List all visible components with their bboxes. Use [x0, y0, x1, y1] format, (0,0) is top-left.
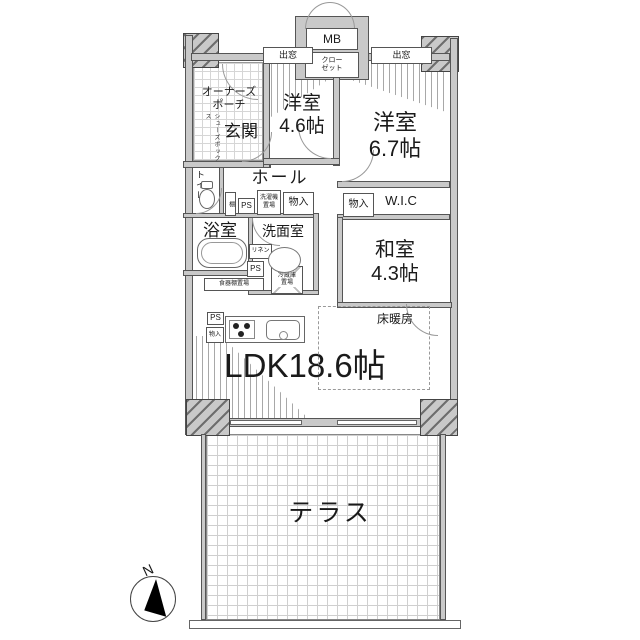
shelf: 棚 [225, 192, 236, 216]
door-arc [305, 2, 355, 29]
wall [337, 181, 450, 188]
shelf-label: 棚 [227, 201, 233, 208]
bedroom1-size: 4.6帖 [279, 116, 324, 139]
genkan-text: 玄関 [224, 122, 258, 142]
closet: クロー ゼット [305, 52, 359, 78]
washbasin [268, 247, 301, 273]
stove-burner [233, 323, 239, 329]
wall [185, 35, 193, 435]
washroom-text: 洗面室 [262, 223, 304, 240]
monoire-wic: 物入 [343, 193, 374, 217]
washitsu-size: 4.3帖 [371, 262, 419, 286]
floor-heating-text: 床暖房 [377, 312, 413, 326]
meter-box-label: MB [323, 33, 341, 46]
terrace-label: テラス [278, 498, 382, 528]
floor-plan: MB クロー ゼット 出窓 出窓 オーナーズ ポーチ シューズボックス 玄関 洋… [0, 0, 640, 640]
monoire-kitchen: 物入 [206, 327, 224, 343]
pipe-space-kitchen: PS [207, 312, 224, 325]
bedroom2-size: 6.7帖 [369, 136, 422, 162]
bedroom1-name: 洋室 [283, 93, 321, 116]
owners-porch-label: オーナーズ ポーチ [196, 82, 262, 116]
bedroom1-label: 洋室4.6帖 [268, 84, 336, 148]
washer-place-label: 洗濯機 置場 [260, 195, 278, 209]
kitchen-faucet [279, 331, 288, 340]
terrace-text: テラス [288, 498, 372, 528]
floor-heating-label: 床暖房 [364, 310, 426, 328]
pillar [186, 399, 230, 436]
terrace-edge [189, 620, 461, 629]
pipe-space-wash: PS [247, 261, 264, 277]
washer-place: 洗濯機 置場 [257, 190, 281, 215]
wall [337, 217, 343, 308]
washitsu-name: 和室 [375, 238, 415, 262]
monoire-hall-label: 物入 [289, 198, 309, 209]
terrace-wall [201, 434, 206, 620]
bedroom2-label: 洋室6.7帖 [340, 100, 450, 172]
closet-label: クロー ゼット [322, 57, 343, 74]
genkan-label: 玄関 [216, 120, 266, 144]
fridge-place-label: 冷蔵庫 置場 [278, 273, 296, 287]
bay-window-right-label: 出窓 [392, 51, 410, 60]
wall [263, 158, 340, 165]
window-sill [230, 420, 302, 425]
bathtub-inner [201, 242, 243, 264]
owners-porch-text: オーナーズ ポーチ [202, 86, 256, 112]
bedroom2-name: 洋室 [373, 110, 417, 136]
pipe-space-hall: PS [238, 198, 255, 214]
wic-text: W.I.C [385, 193, 417, 209]
toilet-bowl [199, 189, 215, 209]
compass: N [122, 562, 192, 637]
cupboard-place: 食器棚置場 [204, 278, 264, 291]
linen-label: リネン [251, 248, 269, 254]
pipe-space-wash-label: PS [250, 265, 261, 273]
terrace-wall [440, 434, 446, 620]
stove-burner [238, 331, 244, 337]
bay-window-right: 出窓 [371, 47, 432, 64]
wall [313, 213, 319, 293]
monoire-kitchen-label: 物入 [209, 332, 221, 338]
washroom-label: 洗面室 [254, 221, 312, 241]
monoire-wic-label: 物入 [349, 200, 369, 211]
cupboard-place-label: 食器棚置場 [219, 281, 249, 287]
bay-window-left-label: 出窓 [279, 51, 297, 60]
washitsu-label: 和室4.3帖 [346, 228, 444, 296]
pipe-space-kitchen-label: PS [210, 314, 221, 322]
hall-text: ホール [252, 168, 309, 188]
hall-label: ホール [244, 167, 316, 189]
bay-window-left: 出窓 [263, 47, 313, 64]
window-sill [337, 420, 417, 425]
pillar [420, 399, 458, 436]
monoire-hall: 物入 [283, 192, 314, 215]
stove-burner [244, 323, 250, 329]
wall [450, 38, 458, 435]
wic-label: W.I.C [372, 192, 430, 210]
meter-box: MB [306, 28, 358, 50]
toilet-tank [201, 181, 213, 189]
pipe-space-hall-label: PS [241, 202, 252, 210]
